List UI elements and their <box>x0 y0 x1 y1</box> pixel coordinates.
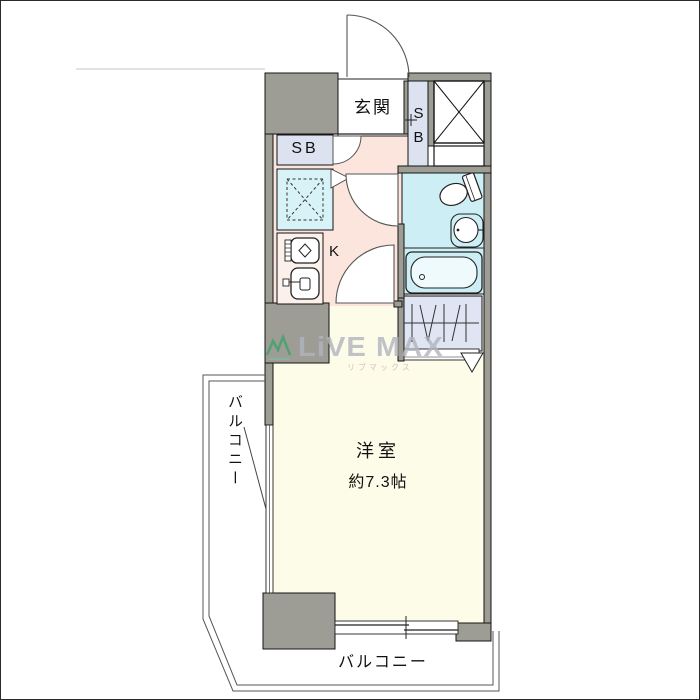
entrance-door-arc <box>347 15 409 77</box>
entrance-label: 玄関 <box>338 93 408 118</box>
pipe-space-x-box <box>434 81 484 166</box>
shoebox-left-label: SB <box>277 140 333 158</box>
stove-icon <box>285 238 319 263</box>
watermark-brand-text: LiVE MAX <box>298 333 444 361</box>
watermark-kana-text: リブマックス <box>347 362 413 373</box>
shoebox-letter-s: S <box>413 102 423 126</box>
shoebox-letter-b: B <box>413 126 423 150</box>
balcony-bottom-label: バルコニー <box>321 648 445 672</box>
kitchen-counter <box>277 233 323 304</box>
casement-window-line <box>244 425 273 593</box>
balcony-left-label: バルコニー <box>224 394 245 599</box>
floorplan-canvas: 玄関 S B SB K 洋室 約7.3帖 バルコニー バルコニー LiVE MA… <box>0 0 700 700</box>
livemax-logo-icon <box>265 333 293 363</box>
main-room-size-label: 約7.3帖 <box>329 468 427 492</box>
shoebox-strip-label: S B <box>408 98 429 154</box>
main-room-label: 洋室 <box>329 437 427 463</box>
kitchen-label: K <box>329 243 339 260</box>
watermark: LiVE MAX リブマックス <box>265 333 438 363</box>
washer-space-dashed-box <box>277 169 333 230</box>
